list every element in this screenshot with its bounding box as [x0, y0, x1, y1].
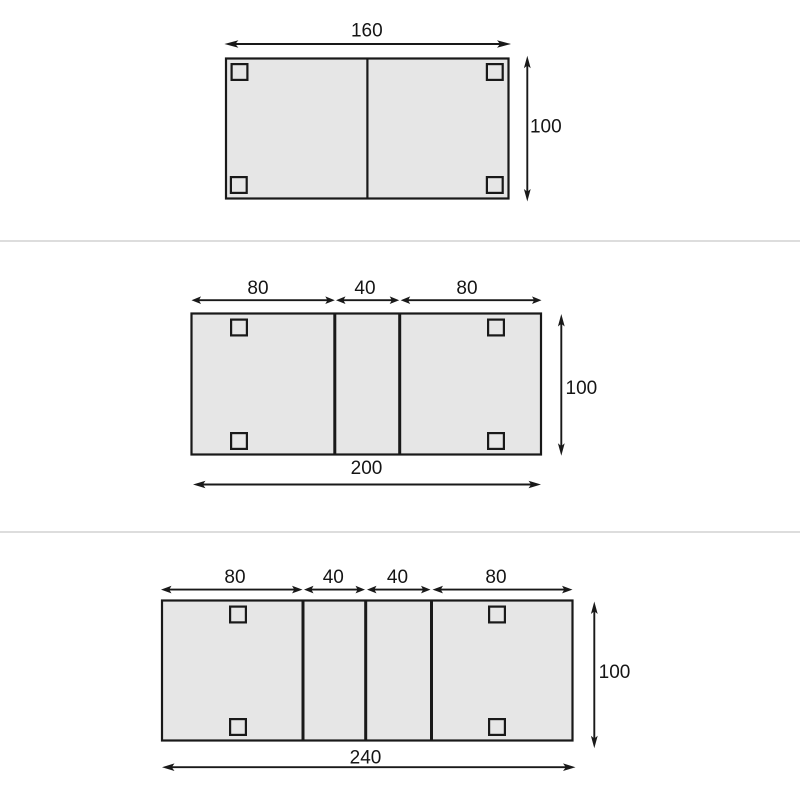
- svg-text:160: 160: [351, 20, 383, 41]
- svg-text:100: 100: [530, 116, 562, 137]
- svg-text:200: 200: [351, 458, 383, 479]
- svg-text:40: 40: [354, 278, 375, 299]
- svg-text:240: 240: [350, 747, 382, 768]
- svg-text:100: 100: [599, 662, 631, 683]
- svg-text:80: 80: [247, 278, 268, 299]
- svg-text:80: 80: [224, 567, 245, 588]
- svg-text:80: 80: [485, 567, 506, 588]
- svg-text:80: 80: [456, 278, 477, 299]
- svg-text:40: 40: [387, 567, 408, 588]
- svg-text:100: 100: [566, 378, 598, 399]
- svg-text:40: 40: [323, 567, 344, 588]
